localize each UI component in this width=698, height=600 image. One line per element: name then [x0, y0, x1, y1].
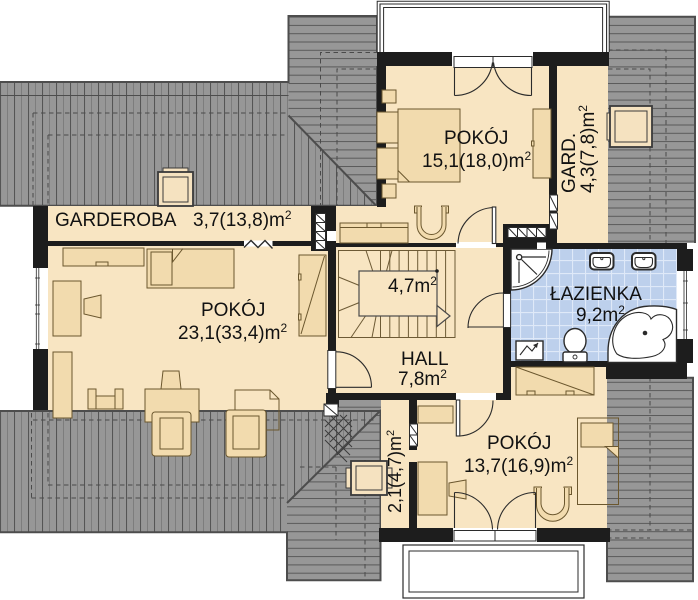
svg-text:2,1(4,7)m2: 2,1(4,7)m2 [385, 430, 405, 513]
svg-text:POKÓJ: POKÓJ [201, 299, 265, 321]
svg-text:13,7(16,9)m2: 13,7(16,9)m2 [464, 454, 573, 477]
svg-text:ŁAZIENKA: ŁAZIENKA [550, 284, 642, 305]
svg-text:4,3(7,8)m2: 4,3(7,8)m2 [576, 105, 599, 193]
svg-text:POKÓJ: POKÓJ [444, 127, 508, 149]
svg-text:POKÓJ: POKÓJ [487, 432, 551, 454]
svg-text:7,8m2: 7,8m2 [398, 367, 447, 390]
svg-text:9,2m2: 9,2m2 [576, 303, 625, 326]
svg-text:GARD.: GARD. [559, 133, 580, 193]
svg-text:GARDEROBA: GARDEROBA [55, 210, 177, 231]
svg-text:23,1(33,4)m2: 23,1(33,4)m2 [178, 321, 287, 344]
svg-text:3,7(13,8)m2: 3,7(13,8)m2 [193, 208, 292, 231]
svg-text:4,7m2: 4,7m2 [388, 274, 437, 297]
svg-text:15,1(18,0)m2: 15,1(18,0)m2 [422, 149, 531, 172]
